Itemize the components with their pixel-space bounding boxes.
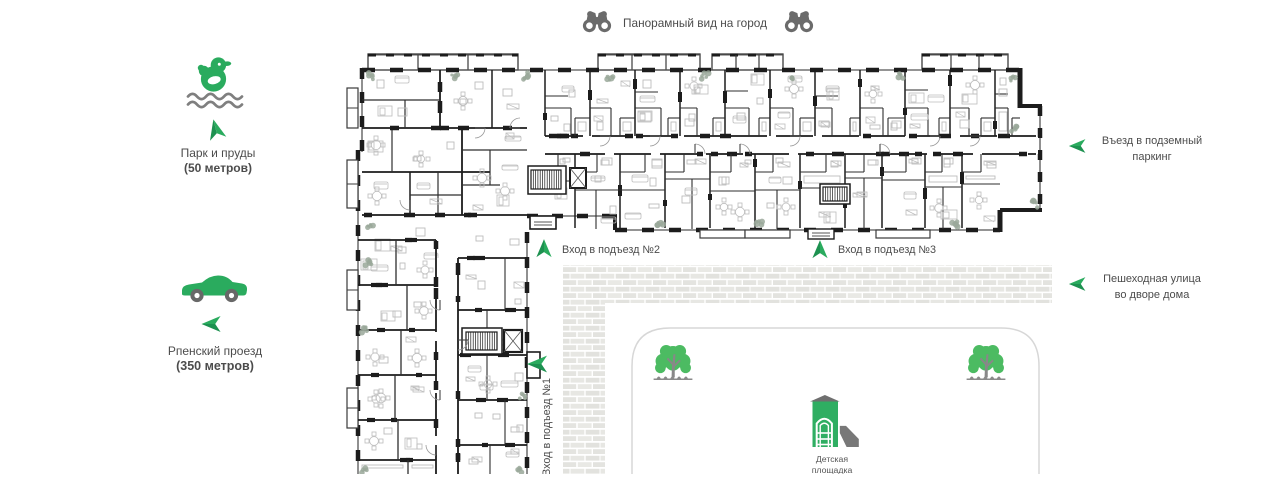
svg-text:Детская: Детская [816, 454, 848, 464]
svg-text:во дворе дома: во дворе дома [1115, 289, 1191, 301]
svg-text:(50 метров): (50 метров) [184, 161, 252, 175]
svg-text:Рпенский проезд: Рпенский проезд [168, 344, 262, 358]
svg-text:площадка: площадка [812, 465, 853, 474]
svg-text:Панорамный вид на город: Панорамный вид на город [623, 16, 767, 30]
svg-text:Въезд в подземный: Въезд в подземный [1102, 135, 1202, 147]
svg-text:Пешеходная улица: Пешеходная улица [1103, 273, 1202, 285]
svg-text:Вход в подъезд №2: Вход в подъезд №2 [562, 244, 660, 256]
svg-text:Вход в подъезд №3: Вход в подъезд №3 [838, 244, 936, 256]
svg-text:(350 метров): (350 метров) [176, 359, 254, 373]
svg-text:паркинг: паркинг [1132, 151, 1171, 163]
svg-text:Парк и пруды: Парк и пруды [181, 146, 256, 160]
svg-text:Вход в подъезд №1: Вход в подъезд №1 [541, 378, 553, 474]
